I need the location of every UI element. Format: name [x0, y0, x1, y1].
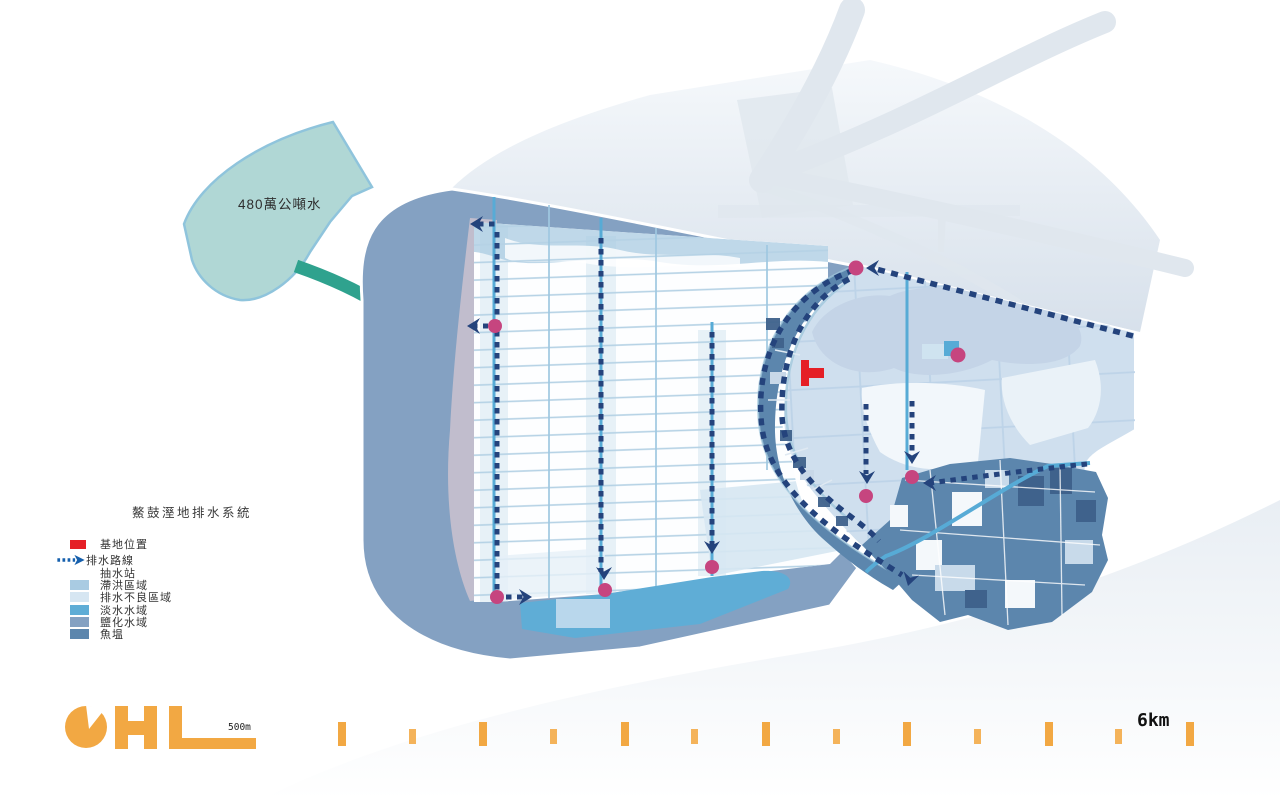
- pump-station-dot: [951, 348, 966, 363]
- flood-area-swatch: [70, 580, 89, 590]
- pump-station-dot: [598, 583, 612, 597]
- fresh-water-swatch: [70, 605, 89, 615]
- drainage-map-poster: 480萬公噸水 500m 6km 鰲鼓溼地排水系統 基地位置: [0, 0, 1280, 800]
- legend-item-fish-pond: 魚塭: [70, 628, 290, 640]
- legend-item-site: 基地位置: [70, 536, 290, 552]
- scalebar-label: 500m: [228, 722, 251, 733]
- pump-station-dot: [859, 489, 873, 503]
- pale-square-on-strip: [556, 599, 610, 628]
- legend: 鰲鼓溼地排水系統 基地位置 排水路線 抽水站 滯洪區域 排水不良區域 淡水水域 …: [70, 502, 290, 640]
- pump-station-dot: [905, 470, 919, 484]
- drainage-route-swatch: [56, 553, 86, 567]
- map-canvas: 480萬公噸水 500m 6km: [0, 0, 1280, 800]
- pump-station-dot: [488, 319, 502, 333]
- salt-water-swatch: [70, 617, 89, 627]
- fish-pond-swatch: [70, 629, 89, 639]
- poor-drainage-swatch: [70, 592, 89, 602]
- pump-station-dot: [490, 590, 504, 604]
- reservoir-label: 480萬公噸水: [238, 197, 322, 212]
- site-location-swatch: [70, 540, 86, 549]
- legend-title: 鰲鼓溼地排水系統: [132, 502, 290, 521]
- river-band: [718, 205, 1020, 218]
- ruler-end-label: 6km: [1137, 710, 1170, 731]
- pump-station-dot: [705, 560, 719, 574]
- pump-station-dot: [849, 261, 864, 276]
